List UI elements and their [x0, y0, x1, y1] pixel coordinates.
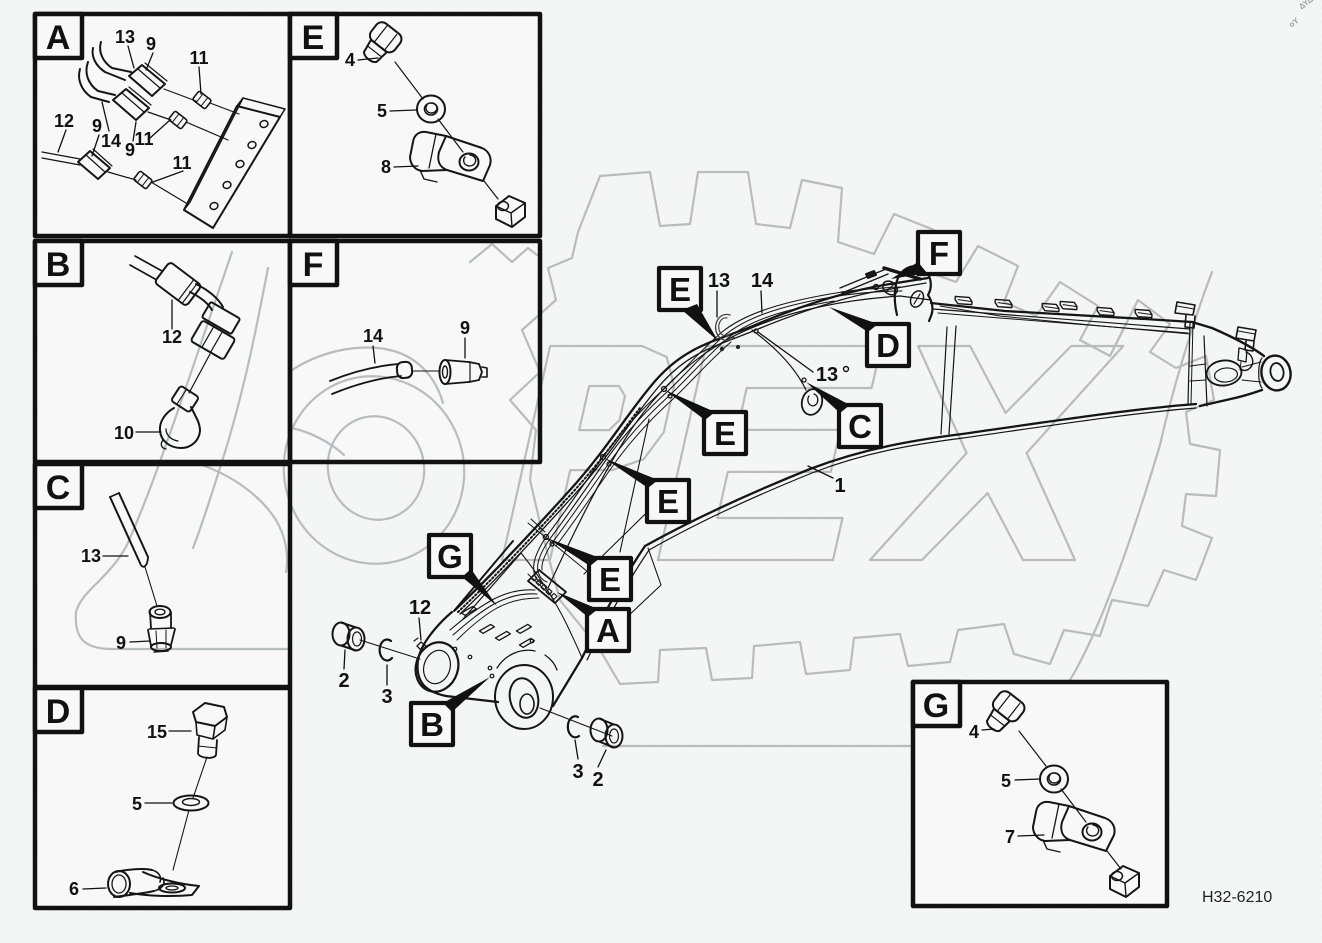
svg-text:5: 5 [132, 794, 142, 814]
svg-text:B: B [46, 246, 71, 284]
svg-text:oΥ: oΥ [1287, 16, 1301, 30]
svg-text:12: 12 [54, 111, 74, 131]
svg-text:H32-6210: H32-6210 [1202, 889, 1272, 906]
svg-text:9: 9 [146, 34, 156, 54]
svg-text:5: 5 [377, 101, 387, 121]
svg-text:1: 1 [834, 475, 845, 497]
svg-text:3: 3 [572, 761, 583, 783]
svg-text:D: D [46, 693, 71, 731]
svg-text:E: E [669, 271, 691, 308]
svg-text:7: 7 [1005, 827, 1015, 847]
svg-text:14: 14 [751, 270, 774, 292]
svg-text:E: E [657, 483, 679, 520]
svg-text:13: 13 [81, 546, 101, 566]
svg-text:F: F [303, 246, 324, 284]
svg-text:9: 9 [460, 318, 470, 338]
svg-text:E: E [302, 19, 325, 57]
svg-text:14: 14 [363, 326, 383, 346]
svg-text:B: B [420, 706, 444, 743]
svg-text:E: E [599, 561, 621, 598]
svg-text:E: E [714, 415, 736, 452]
svg-text:2: 2 [592, 769, 603, 791]
svg-text:11: 11 [189, 48, 208, 68]
svg-text:A: A [46, 19, 71, 57]
svg-text:4: 4 [969, 722, 979, 742]
svg-text:8: 8 [381, 157, 391, 177]
svg-text:G: G [923, 687, 949, 725]
svg-text:9: 9 [116, 633, 126, 653]
svg-text:F: F [929, 235, 949, 272]
svg-text:G: G [437, 538, 463, 575]
svg-text:3: 3 [381, 686, 392, 708]
svg-text:13: 13 [115, 27, 135, 47]
svg-text:6: 6 [69, 879, 79, 899]
svg-text:13: 13 [708, 270, 730, 292]
svg-text:12: 12 [409, 597, 431, 619]
svg-text:14: 14 [101, 131, 121, 151]
svg-text:C: C [848, 408, 872, 445]
svg-text:ΔΥΔ: ΔΥΔ [1297, 0, 1315, 11]
svg-text:5: 5 [1001, 771, 1011, 791]
svg-text:11: 11 [172, 153, 191, 173]
svg-text:4: 4 [345, 50, 355, 70]
svg-text:15: 15 [147, 722, 167, 742]
svg-text:13: 13 [816, 364, 838, 386]
svg-text:11: 11 [134, 129, 153, 149]
svg-text:D: D [876, 327, 900, 364]
svg-text:10: 10 [114, 423, 134, 443]
svg-text:2: 2 [338, 670, 349, 692]
svg-text:C: C [46, 469, 71, 507]
svg-text:12: 12 [162, 327, 182, 347]
svg-text:A: A [596, 612, 620, 649]
